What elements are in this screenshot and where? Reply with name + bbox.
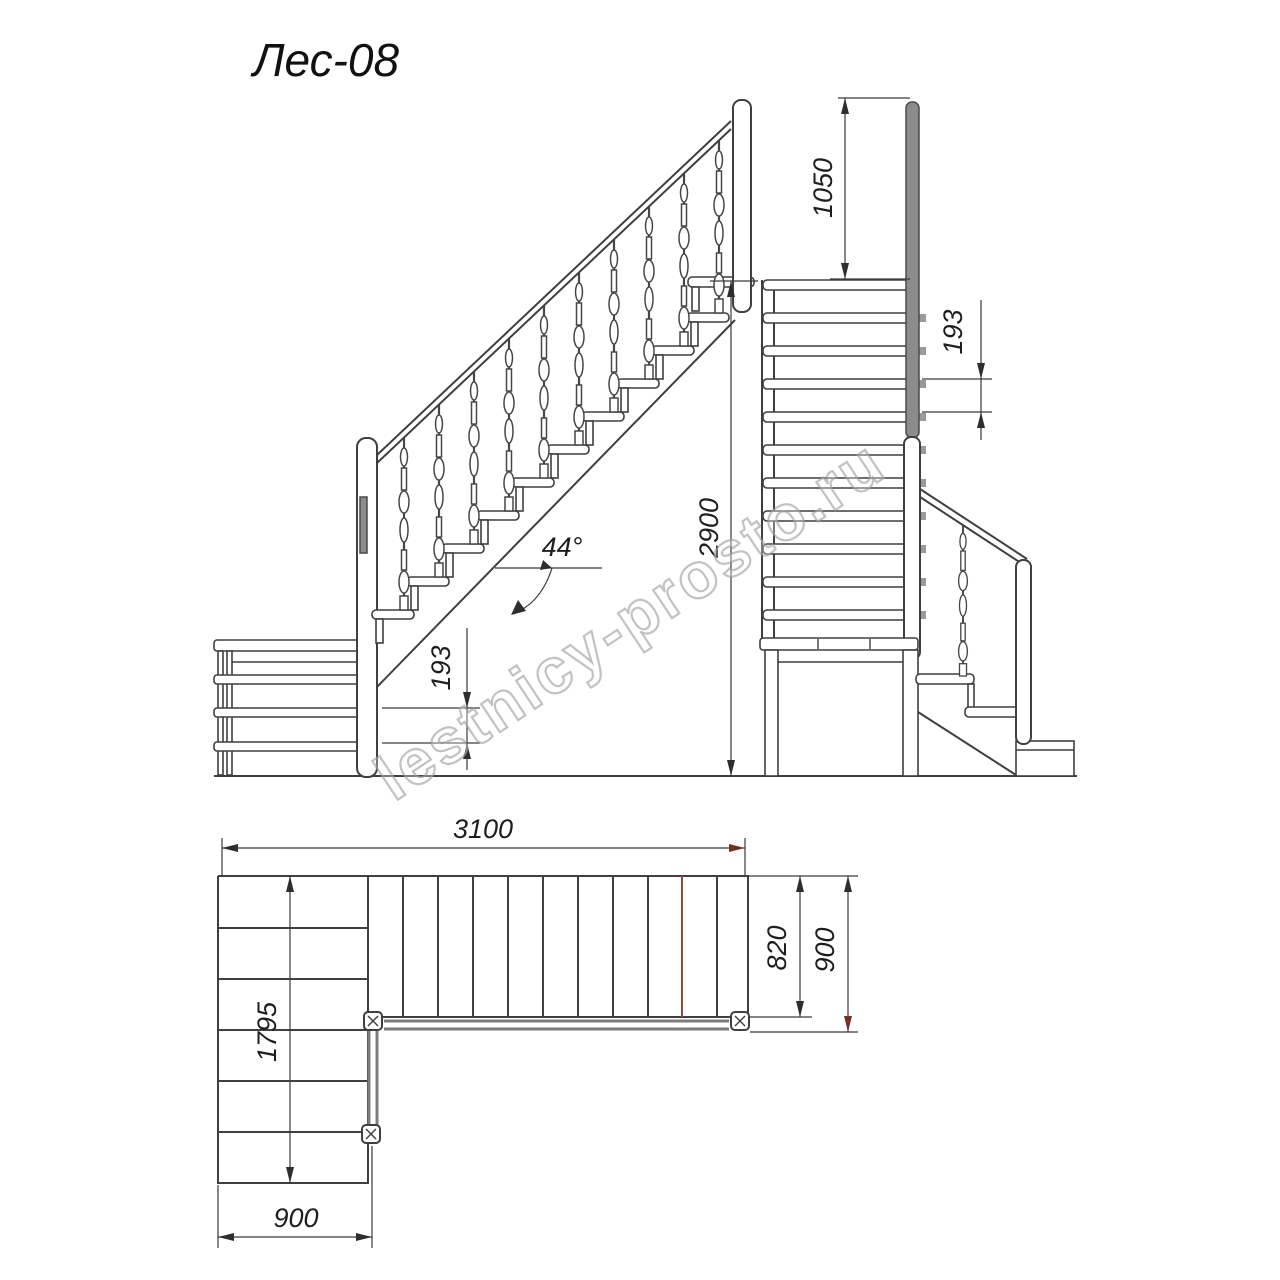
- dim-total-length: 3100: [222, 814, 745, 876]
- railing-post-gray: [906, 102, 919, 438]
- landing-platform: [760, 638, 918, 776]
- dim-riser-front: 193: [922, 300, 992, 440]
- exit-railing: [920, 489, 1031, 744]
- dim-lower-flight-length-text: 1795: [252, 1001, 282, 1062]
- dim-total-length-text: 3100: [453, 814, 513, 844]
- dim-lower-flight-width-text: 900: [273, 1203, 318, 1233]
- dim-riser-front-text: 193: [938, 309, 968, 354]
- plan-lower-flight-rows: [218, 928, 368, 1132]
- lower-landing: [214, 640, 364, 775]
- plan-corner-post: [364, 1012, 382, 1030]
- landing-newel-post: [904, 437, 920, 659]
- dim-flight-width-text: 820: [762, 925, 792, 970]
- plan-railing: [362, 1012, 749, 1143]
- dim-flight-width: 820: [748, 876, 858, 1017]
- plan-view: 3100 1795 900 820: [218, 814, 858, 1248]
- dim-stair-angle: 44°: [542, 532, 583, 562]
- front-elevation-view: 1050 193: [760, 98, 1074, 776]
- dim-flight-total-width-text: 900: [810, 927, 840, 972]
- angle-annotation: 44°: [495, 532, 602, 615]
- main-newel-post: [357, 438, 377, 777]
- plan-bottom-post: [362, 1125, 380, 1143]
- plan-end-post: [731, 1012, 749, 1030]
- top-newel-post: [733, 100, 751, 312]
- stair-drawing-canvas: Лес-08: [0, 0, 1280, 1280]
- dim-riser-side-text: 193: [426, 645, 456, 690]
- handrail: [377, 121, 731, 463]
- exit-steps: [916, 674, 1074, 776]
- dim-railing-height: 1050: [808, 98, 910, 279]
- drawing-title: Лес-08: [250, 34, 400, 86]
- dim-railing-height-text: 1050: [808, 158, 838, 218]
- dim-lower-flight-width: 900: [218, 1146, 372, 1248]
- plan-tread-dividers: [403, 876, 717, 1017]
